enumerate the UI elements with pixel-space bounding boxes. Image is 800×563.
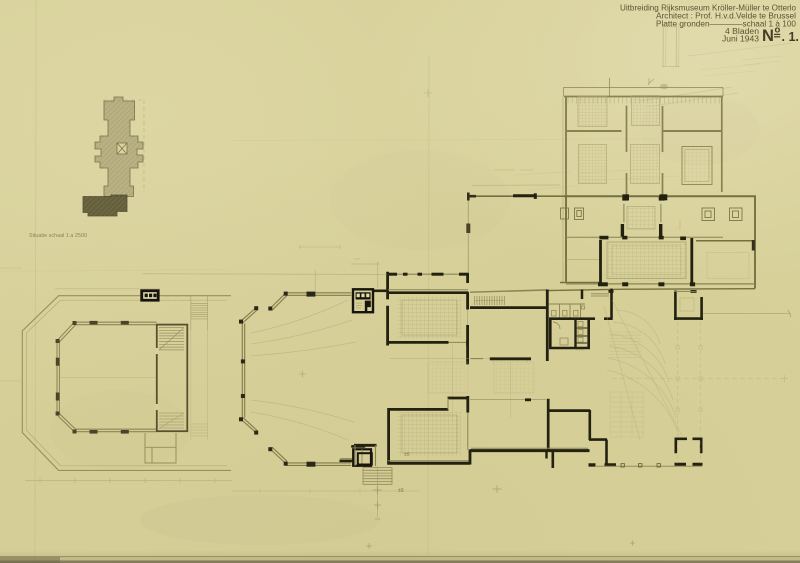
svg-text:. 1.: . 1.: [782, 30, 799, 44]
svg-text:Juni 1943: Juni 1943: [722, 35, 760, 44]
svg-text:±0: ±0: [398, 488, 404, 494]
svg-text:Situatie schaal 1 a 2500: Situatie schaal 1 a 2500: [29, 233, 87, 239]
svg-text:±0: ±0: [404, 452, 410, 458]
svg-text:N: N: [762, 27, 774, 45]
